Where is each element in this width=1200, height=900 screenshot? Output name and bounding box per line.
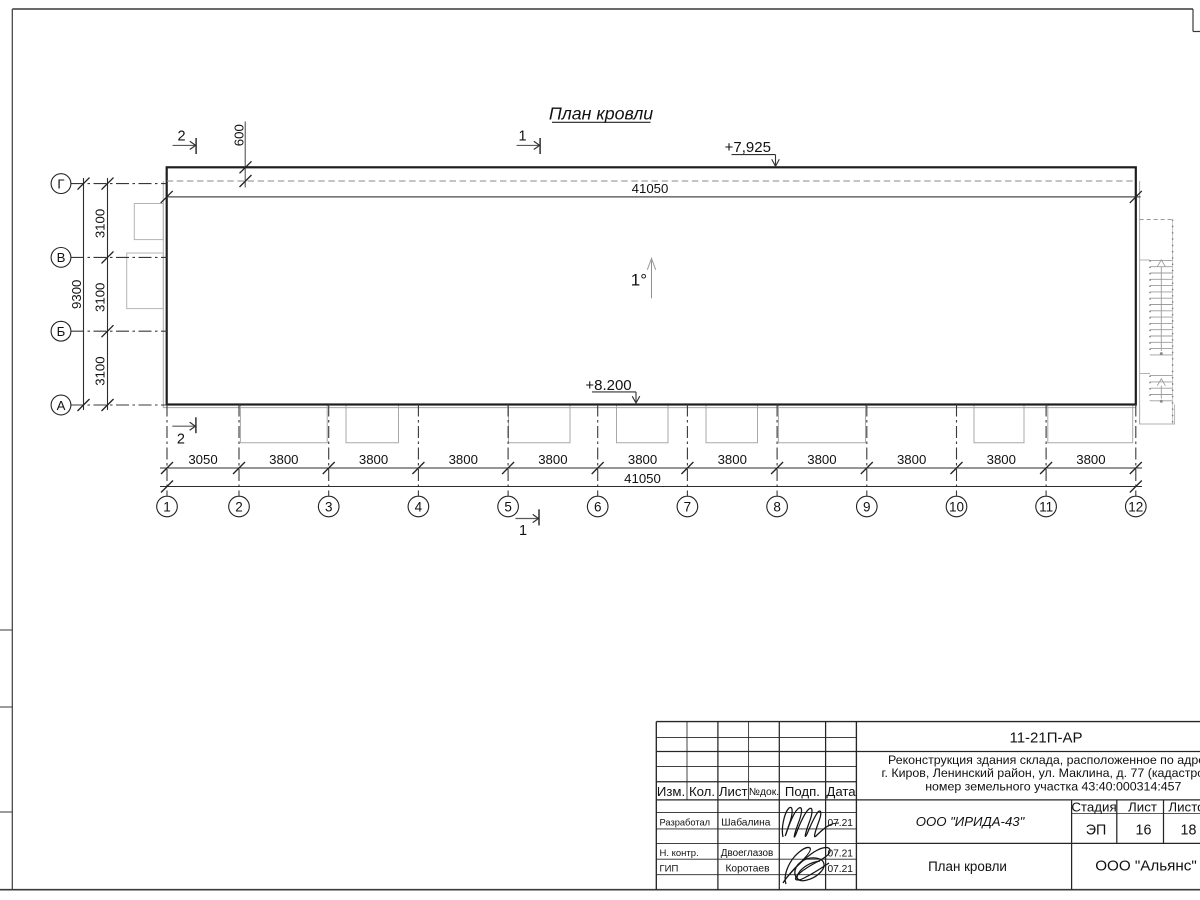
svg-text:Г: Г bbox=[57, 176, 64, 191]
svg-text:ООО "ИРИДА-43": ООО "ИРИДА-43" bbox=[916, 814, 1026, 829]
svg-text:2: 2 bbox=[178, 129, 186, 145]
svg-text:07.21: 07.21 bbox=[827, 818, 853, 829]
svg-text:3100: 3100 bbox=[92, 356, 107, 385]
svg-text:600: 600 bbox=[232, 124, 247, 146]
svg-text:3100: 3100 bbox=[92, 209, 107, 238]
svg-text:9: 9 bbox=[863, 499, 871, 514]
svg-text:1°: 1° bbox=[631, 270, 647, 289]
svg-text:07.21: 07.21 bbox=[827, 864, 853, 875]
svg-text:3800: 3800 bbox=[269, 452, 298, 467]
svg-text:1: 1 bbox=[163, 499, 171, 514]
svg-text:3800: 3800 bbox=[807, 452, 836, 467]
svg-text:В: В bbox=[57, 250, 66, 265]
svg-text:номер земельного участка 43:40: номер земельного участка 43:40:000314:45… bbox=[925, 779, 1181, 793]
svg-text:ГИП: ГИП bbox=[660, 864, 679, 875]
svg-text:1: 1 bbox=[518, 129, 526, 145]
svg-text:8: 8 bbox=[773, 499, 781, 514]
svg-text:41050: 41050 bbox=[624, 471, 661, 486]
svg-text:9300: 9300 bbox=[69, 280, 84, 309]
svg-text:3: 3 bbox=[325, 499, 333, 514]
svg-text:2: 2 bbox=[177, 431, 185, 447]
svg-text:Лист: Лист bbox=[719, 784, 748, 799]
svg-text:3800: 3800 bbox=[359, 452, 388, 467]
svg-text:3800: 3800 bbox=[1076, 452, 1105, 467]
svg-text:6: 6 bbox=[594, 499, 602, 514]
svg-text:18: 18 bbox=[1181, 823, 1197, 839]
svg-text:Коротаев: Коротаев bbox=[725, 864, 769, 875]
svg-text:Листов: Листов bbox=[1168, 800, 1200, 815]
svg-text:Дата: Дата bbox=[826, 784, 856, 799]
svg-text:2: 2 bbox=[235, 499, 243, 514]
svg-text:12: 12 bbox=[1128, 499, 1143, 514]
svg-text:41050: 41050 bbox=[632, 181, 669, 196]
svg-text:Лист: Лист bbox=[1128, 800, 1157, 815]
svg-text:11-21П-АР: 11-21П-АР bbox=[1009, 729, 1082, 746]
svg-text:16: 16 bbox=[1136, 823, 1152, 839]
svg-text:3800: 3800 bbox=[718, 452, 747, 467]
svg-text:5: 5 bbox=[504, 499, 512, 514]
svg-text:1: 1 bbox=[519, 523, 527, 539]
svg-text:11: 11 bbox=[1039, 499, 1053, 514]
svg-text:+7,925: +7,925 bbox=[725, 139, 771, 156]
svg-text:Кол.: Кол. bbox=[689, 784, 715, 799]
svg-text:г. Киров, Ленинский район, ул.: г. Киров, Ленинский район, ул. Маклина, … bbox=[882, 766, 1200, 780]
svg-text:Шабалина: Шабалина bbox=[721, 816, 771, 828]
svg-text:3050: 3050 bbox=[188, 452, 217, 467]
svg-text:Реконструкция здания склада, р: Реконструкция здания склада, расположенн… bbox=[888, 753, 1200, 767]
svg-text:ООО "Альянс": ООО "Альянс" bbox=[1095, 858, 1197, 875]
svg-text:План кровли: План кровли bbox=[928, 859, 1007, 874]
svg-text:3100: 3100 bbox=[92, 283, 107, 312]
svg-text:Стадия: Стадия bbox=[1071, 800, 1116, 815]
svg-text:Разработал: Разработал bbox=[660, 817, 711, 827]
svg-text:ЭП: ЭП bbox=[1086, 823, 1107, 839]
svg-text:07.21: 07.21 bbox=[827, 848, 853, 859]
svg-text:7: 7 bbox=[684, 499, 692, 514]
svg-text:3800: 3800 bbox=[987, 452, 1016, 467]
svg-text:Подп.: Подп. bbox=[785, 784, 820, 799]
svg-text:План кровли: План кровли bbox=[549, 103, 653, 123]
svg-text:3800: 3800 bbox=[538, 452, 567, 467]
svg-text:Б: Б bbox=[57, 324, 66, 339]
svg-text:№док.: №док. bbox=[749, 787, 779, 798]
svg-text:Изм.: Изм. bbox=[657, 784, 685, 799]
svg-text:3800: 3800 bbox=[897, 452, 926, 467]
svg-text:10: 10 bbox=[949, 499, 964, 514]
svg-text:3800: 3800 bbox=[449, 452, 478, 467]
svg-text:3800: 3800 bbox=[628, 452, 657, 467]
svg-text:4: 4 bbox=[415, 499, 423, 514]
svg-text:Н. контр.: Н. контр. bbox=[660, 848, 699, 859]
svg-text:Двоеглазов: Двоеглазов bbox=[721, 848, 774, 859]
svg-text:А: А bbox=[57, 398, 66, 413]
